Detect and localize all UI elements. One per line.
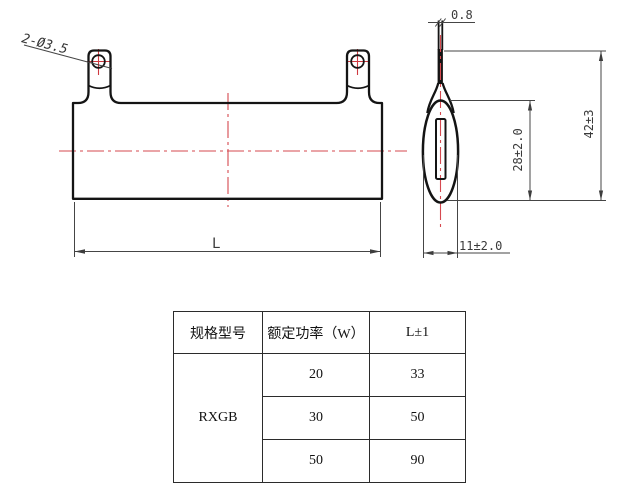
arrowhead-left	[75, 249, 86, 253]
width-label: 11±2.0	[459, 239, 502, 253]
overall-length-label: 42±3	[582, 110, 596, 139]
lug-flare-right	[443, 83, 454, 113]
side-view: 0.8 28±2.0 42±3	[423, 8, 606, 258]
power-cell: 30	[263, 397, 370, 440]
header-rated-power: 额定功率（W）	[263, 312, 370, 354]
lug-flare-left	[427, 83, 438, 113]
header-length: L±1	[370, 312, 466, 354]
body-length-label: 28±2.0	[511, 128, 525, 171]
length-dimension-label: L	[212, 236, 220, 252]
length-cell: 33	[370, 354, 466, 397]
length-cell: 50	[370, 397, 466, 440]
table-header-row: 规格型号 额定功率（W） L±1	[174, 312, 466, 354]
left-lug-seat-line	[89, 86, 111, 89]
datasheet-page: 2-Ø3.5 L	[0, 0, 627, 500]
length-cell: 90	[370, 440, 466, 483]
arrowhead-right	[370, 249, 381, 253]
tab-thickness-label: 0.8	[451, 8, 473, 22]
spec-table: 规格型号 额定功率（W） L±1 RXGB 20 33 30 50 50 90	[173, 311, 466, 483]
header-model: 规格型号	[174, 312, 263, 354]
tab-thickness-dimension: 0.8	[428, 8, 475, 27]
overall-length-dimension: 42±3	[444, 51, 606, 201]
arrowhead-down	[528, 191, 532, 201]
table-row: RXGB 20 33	[174, 354, 466, 397]
power-cell: 20	[263, 354, 370, 397]
technical-drawing: 2-Ø3.5 L	[0, 0, 627, 295]
arrowhead-up	[599, 51, 603, 61]
model-cell: RXGB	[174, 354, 263, 483]
arrowhead-left	[424, 251, 434, 255]
hole-diameter-label: 2-Ø3.5	[20, 31, 69, 57]
body-length-dimension: 28±2.0	[450, 101, 535, 201]
arrowhead-down	[599, 191, 603, 201]
front-view: 2-Ø3.5 L	[20, 31, 407, 257]
arrowhead-right	[448, 251, 458, 255]
arrowhead-up	[528, 101, 532, 111]
right-lug-seat-line	[347, 86, 369, 89]
power-cell: 50	[263, 440, 370, 483]
length-dimension: L	[75, 202, 381, 257]
